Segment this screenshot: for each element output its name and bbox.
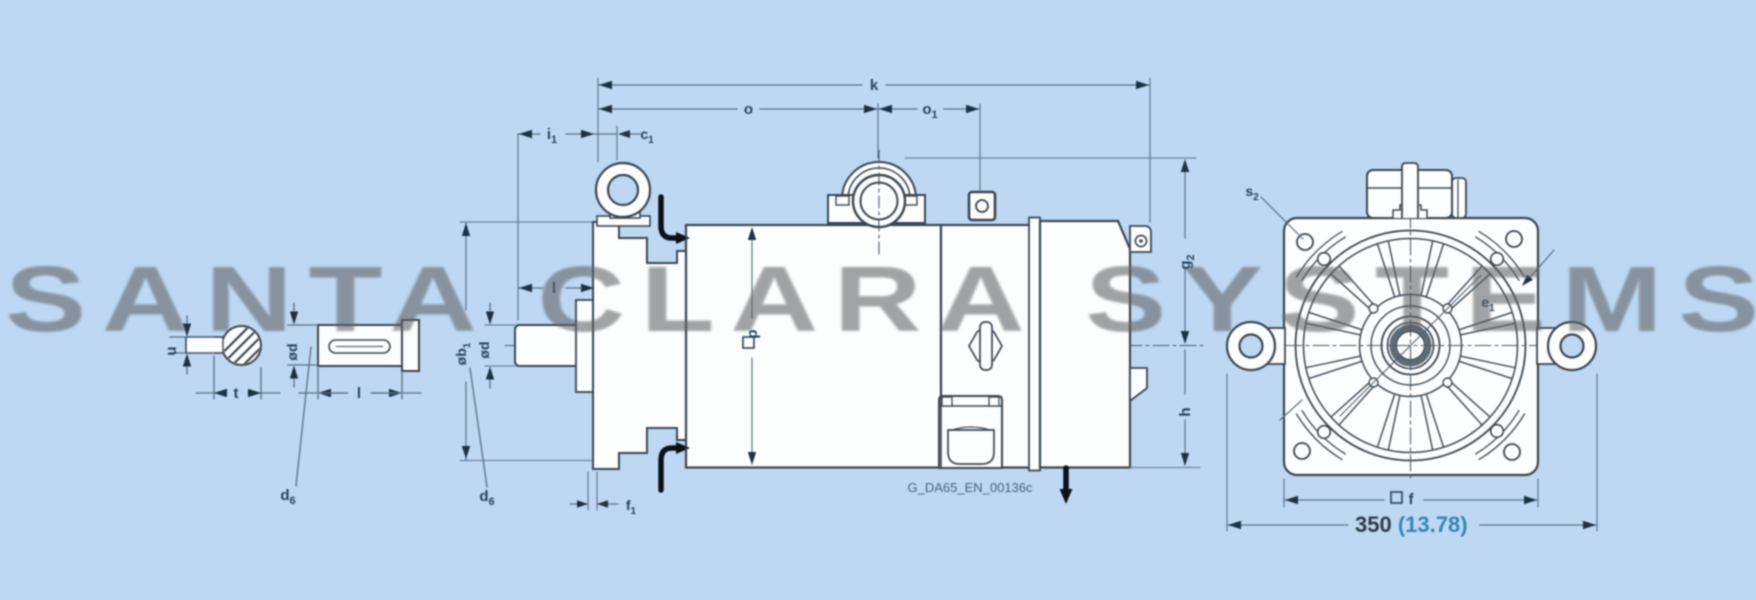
svg-text:h: h: [1177, 407, 1194, 416]
svg-text:k: k: [870, 77, 879, 94]
svg-text:G_DA65_EN_00136c: G_DA65_EN_00136c: [907, 480, 1033, 495]
svg-text:SANTA CLARA SYSTEMS: SANTA CLARA SYSTEMS: [5, 247, 1756, 351]
svg-text:t: t: [234, 385, 239, 402]
svg-text:350 (13.78): 350 (13.78): [1355, 512, 1468, 537]
svg-text:o: o: [744, 101, 753, 118]
svg-text:l: l: [357, 385, 361, 402]
